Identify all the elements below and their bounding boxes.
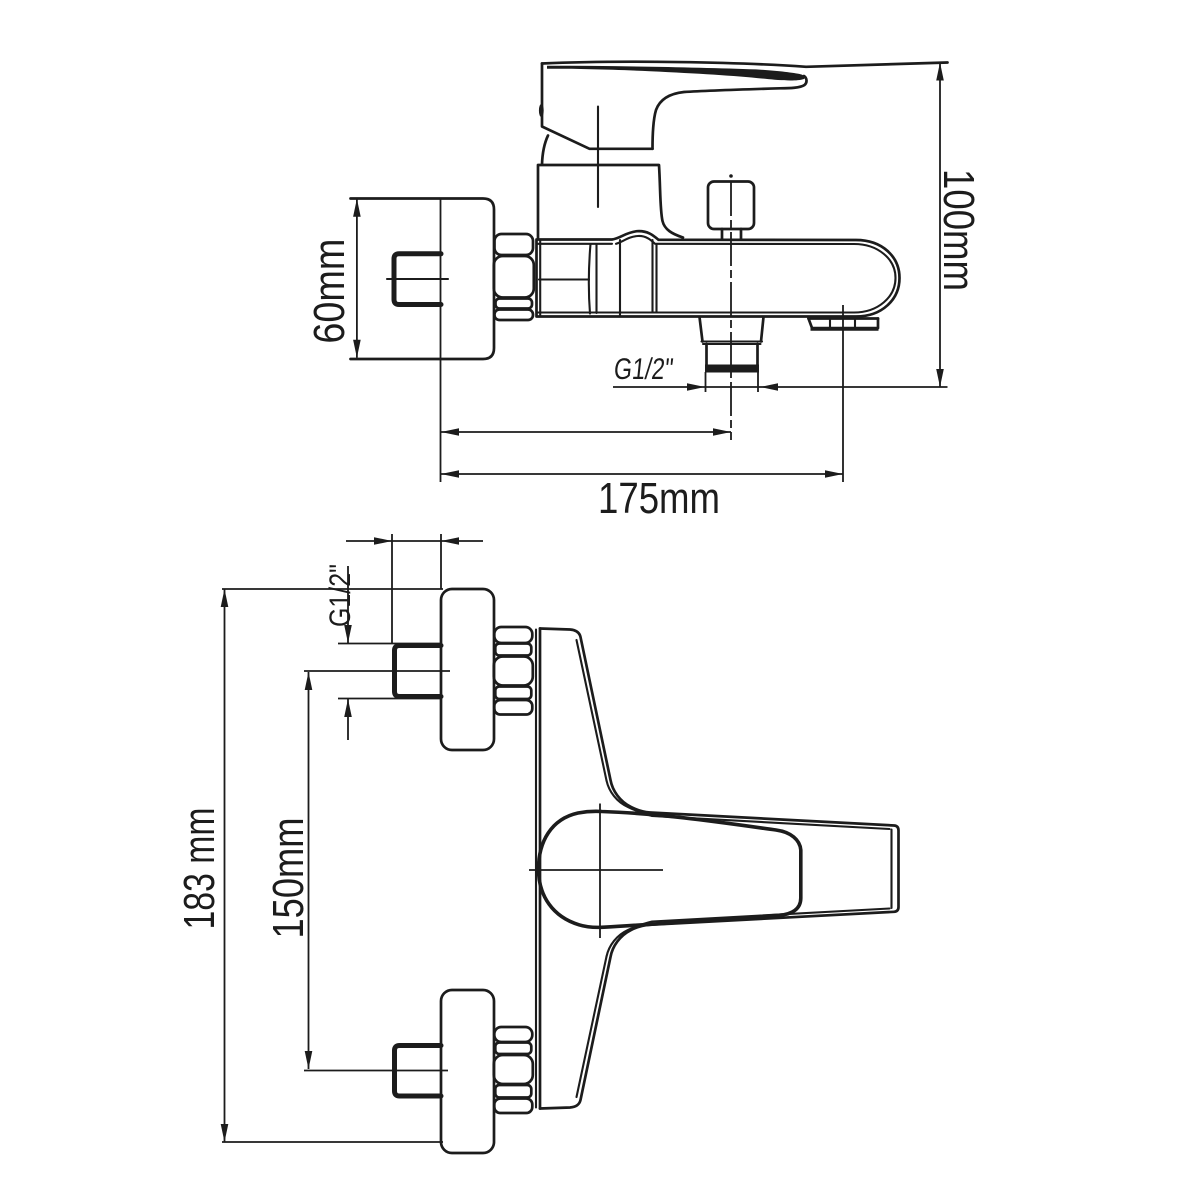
svg-text:G1/2": G1/2"	[612, 353, 674, 386]
svg-text:175mm: 175mm	[598, 474, 720, 523]
svg-text:G1/2": G1/2"	[324, 564, 357, 627]
svg-text:150mm: 150mm	[264, 818, 313, 939]
svg-text:100mm: 100mm	[934, 169, 983, 291]
svg-text:60mm: 60mm	[305, 239, 354, 344]
svg-text:183 mm: 183 mm	[175, 808, 224, 930]
